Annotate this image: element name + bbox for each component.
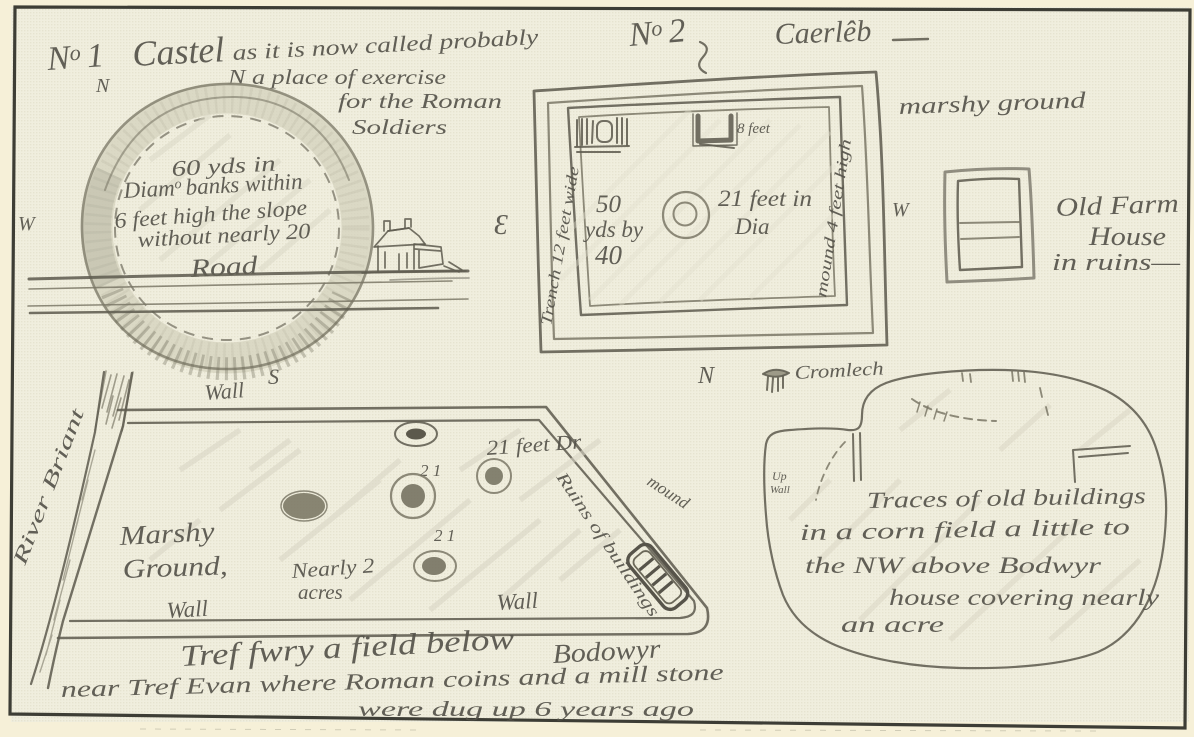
svg-text:N: N xyxy=(95,75,111,97)
svg-text:Up: Up xyxy=(772,469,787,483)
svg-text:8 feet: 8 feet xyxy=(737,121,771,137)
svg-text:Caerlêb: Caerlêb xyxy=(774,15,872,51)
svg-text:21 feet in: 21 feet in xyxy=(718,186,812,211)
svg-text:Wall: Wall xyxy=(496,588,539,615)
svg-text:Soldiers: Soldiers xyxy=(352,115,447,139)
svg-text:were dug up 6 years ago: were dug up 6 years ago xyxy=(358,697,694,721)
svg-text:for the Roman: for the Roman xyxy=(338,89,502,113)
svg-text:Old Farm: Old Farm xyxy=(1055,189,1179,222)
svg-text:Ground,: Ground, xyxy=(122,550,228,584)
svg-text:Marshy: Marshy xyxy=(118,516,216,551)
svg-text:W: W xyxy=(892,199,911,221)
svg-text:N: N xyxy=(697,363,716,389)
svg-text:N a place of exercise: N a place of exercise xyxy=(227,65,446,89)
svg-text:in ruins—: in ruins— xyxy=(1052,250,1181,276)
svg-text:House: House xyxy=(1088,222,1166,251)
svg-text:acres: acres xyxy=(298,580,343,604)
svg-text:yds by: yds by xyxy=(583,217,644,242)
svg-text:Traces of old buildings: Traces of old buildings xyxy=(867,483,1146,513)
svg-text:the NW above Bodwyr: the NW above Bodwyr xyxy=(805,553,1102,578)
svg-text:house covering nearly: house covering nearly xyxy=(889,585,1160,610)
svg-text:Wall: Wall xyxy=(166,596,209,623)
svg-text:2 1: 2 1 xyxy=(434,526,455,545)
svg-text:Ɛ: Ɛ xyxy=(494,210,508,241)
svg-text:W: W xyxy=(18,213,37,235)
svg-text:50: 50 xyxy=(596,191,622,218)
svg-text:Dia: Dia xyxy=(734,214,770,239)
svg-text:40: 40 xyxy=(595,240,623,270)
svg-text:Wall: Wall xyxy=(204,377,245,405)
svg-text:Wall: Wall xyxy=(770,484,790,496)
svg-text:an acre: an acre xyxy=(841,612,944,637)
svg-text:Castel: Castel xyxy=(131,29,225,74)
svg-text:Road: Road xyxy=(189,250,260,283)
